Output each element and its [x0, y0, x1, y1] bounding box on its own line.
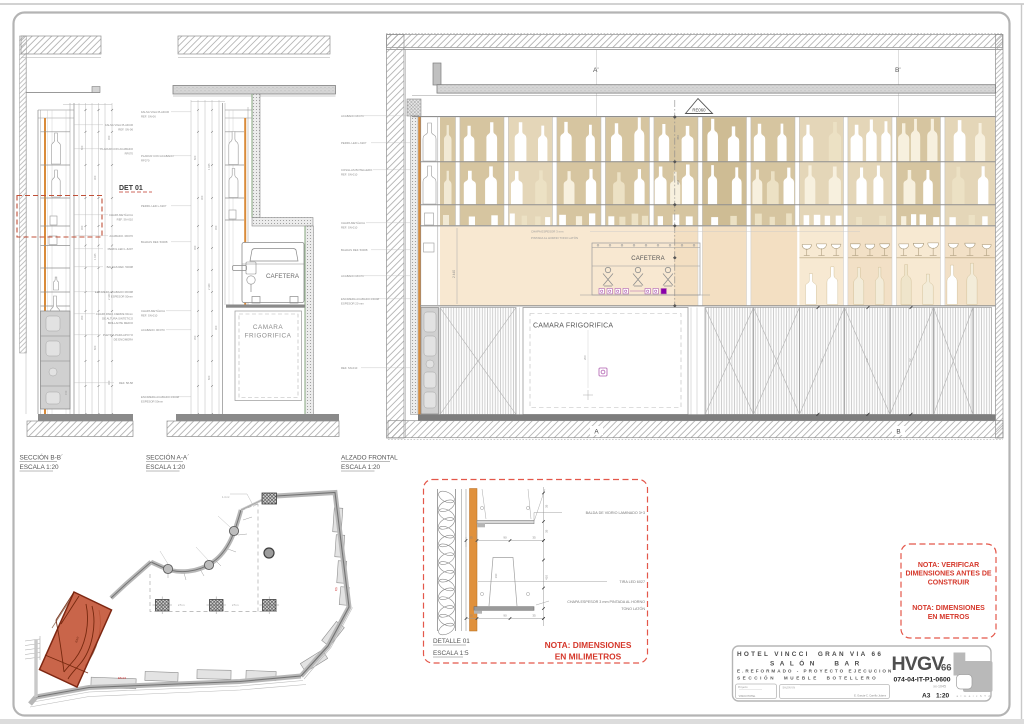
svg-text:190: 190: [494, 573, 498, 578]
svg-text:20: 20: [469, 614, 473, 618]
svg-text:EN MILIMETROS: EN MILIMETROS: [555, 652, 622, 662]
svg-text:CAMARA: CAMARA: [253, 324, 284, 331]
svg-text:90: 90: [503, 536, 507, 540]
svg-text:COSILLAS BOTELLERO: COSILLAS BOTELLERO: [341, 168, 373, 172]
svg-text:BRILLANTE MEDIO: BRILLANTE MEDIO: [108, 321, 134, 325]
svg-text:REF. SN-010: REF. SN-010: [117, 217, 134, 221]
svg-text:SECCIÓN A-A´: SECCIÓN A-A´: [146, 453, 189, 462]
svg-text:SALON V.N: SALON V.N: [783, 687, 796, 690]
svg-text:35: 35: [545, 504, 549, 508]
svg-text:PINTADA AL HORNO TONO LATÓN: PINTADA AL HORNO TONO LATÓN: [531, 235, 578, 240]
svg-text:ESCALA 1:20: ESCALA 1:20: [341, 464, 381, 471]
svg-text:RF070: RF070: [141, 158, 150, 162]
svg-text:VINCCI HOTEL: VINCCI HOTEL: [739, 695, 756, 698]
svg-text:SECCIÓN B-B´: SECCIÓN B-B´: [20, 453, 64, 462]
svg-text:300: 300: [107, 380, 111, 385]
svg-text:E5-04: E5-04: [118, 676, 126, 680]
svg-text:600: 600: [207, 375, 211, 380]
svg-text:2.5 m: 2.5 m: [232, 603, 239, 607]
svg-text:FALSA VIGA PLADUR: FALSA VIGA PLADUR: [141, 110, 169, 114]
svg-text:BALDAS REF. 50008: BALDAS REF. 50008: [107, 265, 134, 269]
svg-text:66: 66: [941, 663, 952, 674]
svg-text:NOTA: VERIFICAR: NOTA: VERIFICAR: [918, 562, 979, 569]
svg-text:E5: E5: [334, 587, 338, 591]
svg-text:xx-1045: xx-1045: [933, 685, 946, 689]
svg-text:DETALLE 01: DETALLE 01: [433, 638, 470, 645]
svg-text:a l m a i c S T A: a l m a i c S T A: [957, 694, 992, 698]
svg-text:02: 02: [865, 358, 869, 362]
svg-text:35: 35: [469, 536, 473, 540]
svg-text:BALDAS REF. 50008: BALDAS REF. 50008: [141, 240, 168, 244]
svg-text:300: 300: [200, 195, 204, 200]
svg-text:CHAPA PARA CIERRE 60mm: CHAPA PARA CIERRE 60mm: [96, 312, 134, 316]
svg-text:PLADUR CON ACABADO: PLADUR CON ACABADO: [141, 154, 174, 158]
svg-text:BALDAS REF. 50008: BALDAS REF. 50008: [341, 248, 368, 252]
svg-text:150: 150: [64, 390, 68, 395]
svg-text:CHAPA METÁLICA: CHAPA METÁLICA: [109, 213, 133, 217]
svg-text:TONO LATÓN: TONO LATÓN: [621, 606, 645, 611]
svg-text:2 440: 2 440: [452, 270, 456, 278]
svg-text:CHAPA ESPESOR 3 mm PINTADA AL: CHAPA ESPESOR 3 mm PINTADA AL HORNO: [567, 600, 645, 604]
svg-text:CONSTRUIR: CONSTRUIR: [928, 579, 970, 586]
svg-text:ESPESOR 20 mm: ESPESOR 20 mm: [341, 301, 365, 305]
svg-text:35: 35: [532, 536, 536, 540]
svg-text:ACABADO RF070: ACABADO RF070: [341, 114, 364, 118]
svg-text:ACABADO RF070: ACABADO RF070: [341, 274, 364, 278]
svg-text:2 440: 2 440: [207, 283, 211, 290]
svg-text:REF. SN-06: REF. SN-06: [118, 127, 133, 131]
svg-text:CHAPA METÁLICA: CHAPA METÁLICA: [141, 309, 165, 313]
svg-text:35: 35: [532, 614, 536, 618]
svg-text:DE ENCIMERA: DE ENCIMERA: [114, 337, 134, 341]
svg-text:SALÓN BAR: SALÓN BAR: [770, 659, 865, 668]
svg-text:PERFIL LED L-6207: PERFIL LED L-6207: [141, 204, 167, 208]
svg-text:1:20: 1:20: [936, 693, 950, 700]
svg-text:DET 01: DET 01: [119, 185, 143, 192]
svg-text:ESCALA 1:5: ESCALA 1:5: [433, 650, 469, 657]
svg-text:CAFETERA: CAFETERA: [266, 273, 300, 280]
svg-text:ACABADO. RF070: ACABADO. RF070: [141, 328, 165, 332]
svg-text:NOTA: DIMENSIONES: NOTA: DIMENSIONES: [545, 640, 632, 650]
svg-text:FRIGORIFICA: FRIGORIFICA: [245, 333, 292, 340]
svg-text:CAFETERA: CAFETERA: [631, 256, 665, 262]
svg-text:074-04-IT-P1-0600: 074-04-IT-P1-0600: [894, 677, 951, 684]
svg-text:1.4 m²: 1.4 m²: [222, 495, 229, 499]
svg-text:410: 410: [545, 575, 549, 580]
svg-text:ACABADO. RF070: ACABADO. RF070: [109, 234, 133, 238]
svg-text:PERFIL LED L-6207: PERFIL LED L-6207: [108, 247, 134, 251]
svg-text:BALDA DE VIDRIO LAMINADO 3+3: BALDA DE VIDRIO LAMINADO 3+3: [586, 511, 645, 515]
svg-text:600: 600: [80, 145, 84, 150]
svg-text:REF. SN-010: REF. SN-010: [341, 366, 358, 370]
svg-text:2.5 m: 2.5 m: [178, 603, 185, 607]
svg-text:RE060: RE060: [692, 108, 706, 113]
svg-text:HVGV: HVGV: [892, 653, 945, 675]
svg-text:E.REFORMADO - PROYECTO EJECUCI: E.REFORMADO - PROYECTO EJECUCION: [737, 669, 893, 674]
svg-text:PLETINA PARA APOYO: PLETINA PARA APOYO: [103, 333, 134, 337]
svg-text:ALZADO FRONTAL: ALZADO FRONTAL: [341, 455, 398, 462]
svg-text:A3: A3: [922, 693, 931, 700]
svg-text:B: B: [896, 429, 900, 436]
svg-text:DIMENSIONES ANTES DE: DIMENSIONES ANTES DE: [905, 571, 991, 578]
svg-text:02: 02: [820, 358, 824, 362]
svg-text:450: 450: [676, 135, 680, 140]
svg-text:REF. SN-06: REF. SN-06: [141, 114, 156, 118]
svg-text:1 945: 1 945: [93, 253, 97, 260]
svg-text:SECCIÓN MUEBLE BOTELLERO: SECCIÓN MUEBLE BOTELLERO: [737, 674, 878, 681]
svg-text:CAMARA FRIGORIFICA: CAMARA FRIGORIFICA: [533, 323, 613, 330]
svg-text:1 945: 1 945: [207, 163, 211, 170]
svg-text:02: 02: [908, 358, 912, 362]
svg-text:ESCALA 1:20: ESCALA 1:20: [20, 464, 60, 471]
svg-text:ENCIMERA ACABADO RF098: ENCIMERA ACABADO RF098: [141, 395, 180, 399]
svg-text:REF. SN-010: REF. SN-010: [141, 313, 158, 317]
svg-text:RF070: RF070: [125, 151, 134, 155]
svg-text:A: A: [594, 429, 599, 436]
svg-text:200: 200: [583, 355, 587, 360]
svg-text:CHAPA METÁLICA: CHAPA METÁLICA: [341, 221, 365, 225]
svg-text:ESCALA 1:20: ESCALA 1:20: [146, 464, 186, 471]
svg-text:DE ALTURA SINTETICO: DE ALTURA SINTETICO: [102, 316, 134, 320]
svg-text:E. García-C. Carrillo Juárez: E. García-C. Carrillo Juárez: [854, 694, 887, 698]
svg-text:300: 300: [676, 180, 680, 185]
svg-text:FALSA VIGA PLADUR: FALSA VIGA PLADUR: [105, 123, 133, 127]
svg-text:600: 600: [193, 155, 197, 160]
svg-text:ENCIMERA ACABADO RF098: ENCIMERA ACABADO RF098: [95, 290, 134, 294]
svg-text:REF. SN-010: REF. SN-010: [341, 172, 358, 176]
svg-text:TIRA LED 6027: TIRA LED 6027: [619, 580, 645, 584]
svg-text:35: 35: [545, 529, 549, 533]
svg-text:600: 600: [93, 345, 97, 350]
svg-text:350: 350: [193, 335, 197, 340]
svg-text:PERFIL LED L-6207: PERFIL LED L-6207: [341, 141, 367, 145]
svg-text:PLADUR CON ACABADO: PLADUR CON ACABADO: [100, 147, 133, 151]
svg-text:ENCIMERA ACABADO RF098: ENCIMERA ACABADO RF098: [341, 297, 380, 301]
svg-text:Proyecto: Proyecto: [738, 686, 748, 689]
svg-text:450: 450: [214, 225, 218, 230]
svg-text:NOTA: DIMENSIONES: NOTA: DIMENSIONES: [912, 605, 985, 612]
svg-text:B': B': [895, 67, 901, 74]
svg-text:300: 300: [93, 175, 97, 180]
svg-text:CHAPA ESPESOR 3 mm: CHAPA ESPESOR 3 mm: [531, 230, 564, 234]
svg-text:A': A': [593, 67, 599, 74]
svg-text:450: 450: [193, 245, 197, 250]
svg-text:REF. SN-010: REF. SN-010: [341, 225, 358, 229]
svg-text:REF. 58-58: REF. 58-58: [119, 381, 133, 385]
svg-text:HOTEL VINCCI GRAN VIA 66: HOTEL VINCCI GRAN VIA 66: [737, 651, 883, 658]
svg-text:450: 450: [80, 225, 84, 230]
svg-text:ESPESOR 50mm: ESPESOR 50mm: [111, 294, 134, 298]
svg-text:90: 90: [503, 614, 507, 618]
svg-text:450: 450: [107, 135, 111, 140]
svg-text:ESPESOR 50mm: ESPESOR 50mm: [141, 399, 164, 403]
svg-text:350: 350: [80, 315, 84, 320]
svg-text:300: 300: [214, 325, 218, 330]
svg-text:EN METROS: EN METROS: [928, 614, 970, 621]
